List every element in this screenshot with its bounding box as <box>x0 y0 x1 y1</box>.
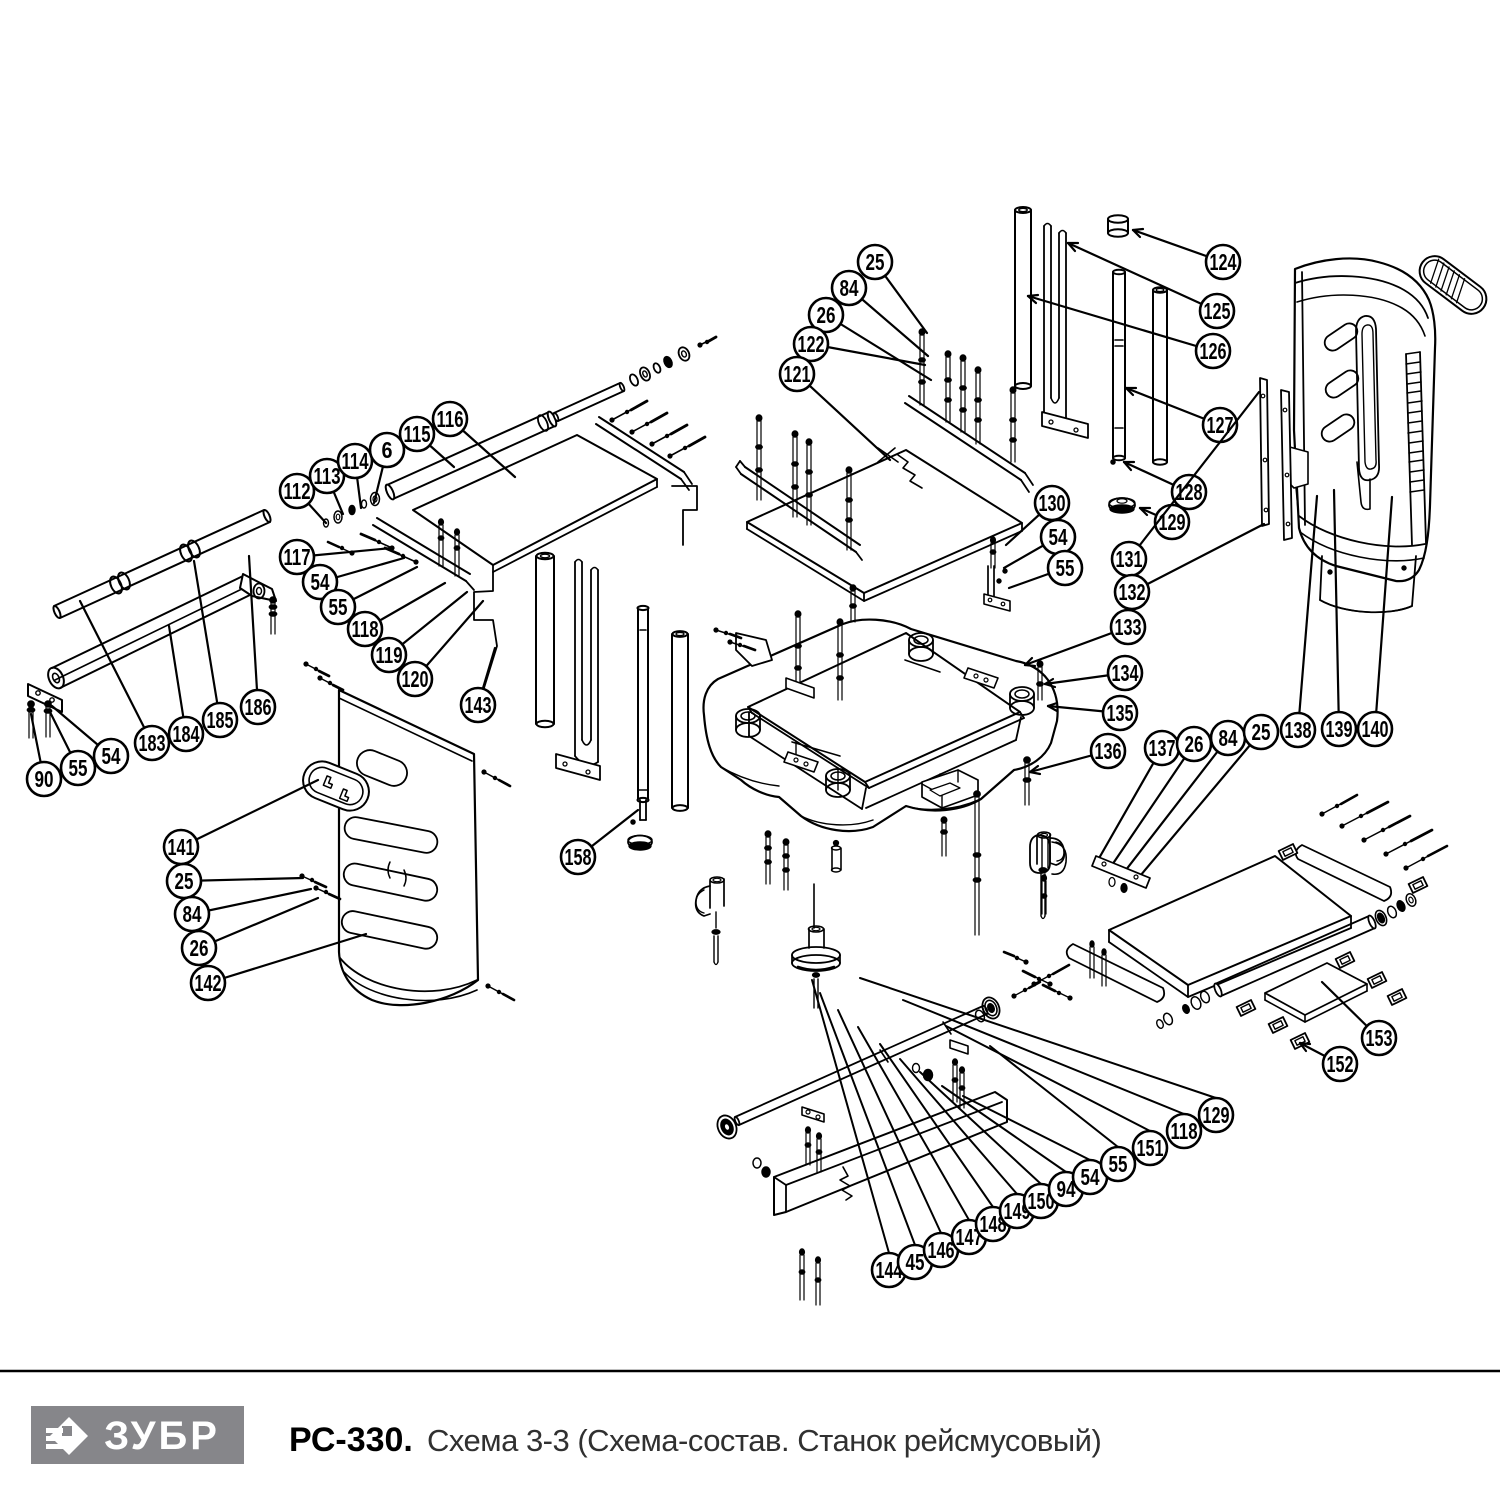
svg-text:132: 132 <box>1119 579 1146 605</box>
svg-text:116: 116 <box>437 406 464 432</box>
svg-text:25: 25 <box>1252 719 1271 745</box>
svg-text:129: 129 <box>1203 1102 1230 1128</box>
svg-text:54: 54 <box>1049 524 1068 550</box>
svg-text:124: 124 <box>1210 249 1237 275</box>
svg-text:114: 114 <box>342 448 369 474</box>
svg-text:90: 90 <box>35 766 54 792</box>
svg-text:136: 136 <box>1095 738 1122 764</box>
svg-text:25: 25 <box>866 249 885 275</box>
svg-text:РС-330.: РС-330. <box>289 1421 413 1459</box>
svg-text:55: 55 <box>1109 1151 1128 1177</box>
svg-text:142: 142 <box>195 970 222 996</box>
svg-text:125: 125 <box>1204 298 1231 324</box>
svg-text:112: 112 <box>284 478 311 504</box>
svg-text:115: 115 <box>404 421 431 447</box>
svg-text:26: 26 <box>1185 731 1204 757</box>
svg-text:55: 55 <box>329 594 348 620</box>
svg-text:113: 113 <box>314 463 341 489</box>
svg-text:126: 126 <box>1200 338 1227 364</box>
svg-text:117: 117 <box>284 544 311 570</box>
svg-text:55: 55 <box>69 755 88 781</box>
svg-text:140: 140 <box>1362 716 1389 742</box>
svg-text:141: 141 <box>168 834 195 860</box>
svg-text:120: 120 <box>402 666 429 692</box>
svg-text:129: 129 <box>1159 509 1186 535</box>
svg-text:139: 139 <box>1326 716 1353 742</box>
svg-text:137: 137 <box>1149 735 1176 761</box>
svg-text:119: 119 <box>376 642 403 668</box>
svg-text:151: 151 <box>1137 1135 1164 1161</box>
svg-text:118: 118 <box>1171 1118 1198 1144</box>
svg-text:84: 84 <box>1219 725 1238 751</box>
svg-text:133: 133 <box>1115 614 1142 640</box>
svg-text:183: 183 <box>139 730 166 756</box>
svg-text:6: 6 <box>382 437 393 463</box>
svg-text:127: 127 <box>1207 412 1234 438</box>
svg-text:54: 54 <box>311 569 330 595</box>
svg-text:185: 185 <box>207 707 234 733</box>
svg-text:54: 54 <box>1081 1164 1100 1190</box>
svg-text:26: 26 <box>817 302 836 328</box>
svg-text:54: 54 <box>102 743 121 769</box>
svg-text:153: 153 <box>1366 1025 1393 1051</box>
svg-text:45: 45 <box>906 1249 925 1275</box>
svg-text:25: 25 <box>175 868 194 894</box>
svg-text:146: 146 <box>928 1237 955 1263</box>
svg-text:135: 135 <box>1107 700 1134 726</box>
svg-text:186: 186 <box>245 694 272 720</box>
svg-text:158: 158 <box>565 844 592 870</box>
svg-text:138: 138 <box>1285 717 1312 743</box>
svg-text:84: 84 <box>183 901 202 927</box>
svg-text:26: 26 <box>190 935 209 961</box>
svg-text:131: 131 <box>1116 546 1143 572</box>
svg-text:130: 130 <box>1039 490 1066 516</box>
svg-text:84: 84 <box>840 275 859 301</box>
svg-text:184: 184 <box>173 721 200 747</box>
svg-text:152: 152 <box>1327 1051 1354 1077</box>
svg-text:ЗУБР: ЗУБР <box>104 1414 220 1458</box>
svg-text:Схема 3-3 (Схема-состав. Стано: Схема 3-3 (Схема-состав. Станок рейсмусо… <box>427 1423 1101 1458</box>
svg-text:122: 122 <box>798 331 825 357</box>
svg-text:134: 134 <box>1112 660 1139 686</box>
svg-text:121: 121 <box>784 361 811 387</box>
svg-text:143: 143 <box>465 692 492 718</box>
svg-text:55: 55 <box>1056 555 1075 581</box>
svg-text:118: 118 <box>352 616 379 642</box>
